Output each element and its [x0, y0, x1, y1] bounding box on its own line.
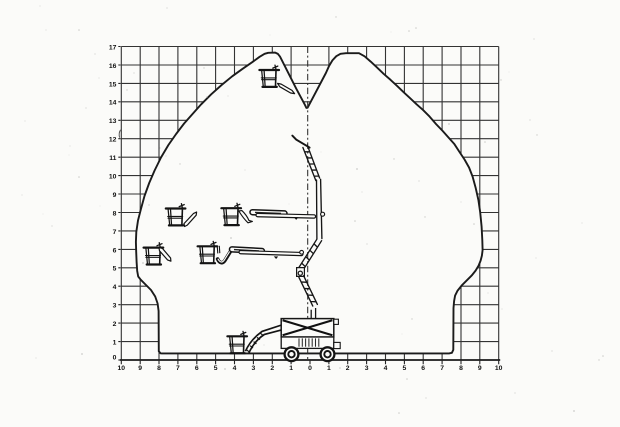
svg-text:8: 8: [459, 365, 463, 372]
svg-text:10: 10: [118, 365, 126, 372]
svg-text:2: 2: [270, 365, 274, 372]
svg-text:4: 4: [233, 365, 237, 372]
svg-text:3: 3: [252, 365, 256, 372]
svg-text:5: 5: [403, 365, 407, 372]
svg-text:4: 4: [384, 365, 388, 372]
svg-text:7: 7: [176, 365, 180, 372]
svg-text:5: 5: [214, 365, 218, 372]
svg-text:3: 3: [113, 303, 117, 310]
svg-text:2: 2: [113, 321, 117, 328]
svg-text:17: 17: [109, 44, 117, 51]
svg-text:3: 3: [365, 365, 369, 372]
svg-text:10: 10: [109, 174, 117, 181]
svg-text:7: 7: [440, 365, 444, 372]
svg-text:0: 0: [308, 365, 312, 372]
svg-text:14: 14: [109, 100, 117, 107]
svg-text:6: 6: [195, 365, 199, 372]
svg-text:1: 1: [327, 365, 331, 372]
svg-text:4: 4: [113, 284, 117, 291]
svg-text:9: 9: [113, 192, 117, 199]
svg-text:13: 13: [109, 118, 117, 125]
svg-text:11: 11: [109, 155, 116, 162]
svg-text:1: 1: [113, 340, 117, 347]
svg-text:2: 2: [346, 365, 350, 372]
svg-text:15: 15: [109, 81, 117, 88]
svg-text:7: 7: [113, 229, 117, 236]
svg-text:16: 16: [109, 63, 117, 70]
svg-text:9: 9: [478, 365, 482, 372]
svg-text:9: 9: [138, 365, 142, 372]
svg-text:6: 6: [421, 365, 425, 372]
svg-text:1: 1: [289, 365, 293, 372]
svg-text:0: 0: [113, 355, 117, 362]
svg-text:10: 10: [495, 365, 503, 372]
svg-text:8: 8: [113, 210, 117, 217]
svg-text:12: 12: [109, 137, 117, 144]
svg-text:8: 8: [157, 365, 161, 372]
svg-text:5: 5: [113, 266, 117, 273]
svg-text:6: 6: [113, 247, 117, 254]
